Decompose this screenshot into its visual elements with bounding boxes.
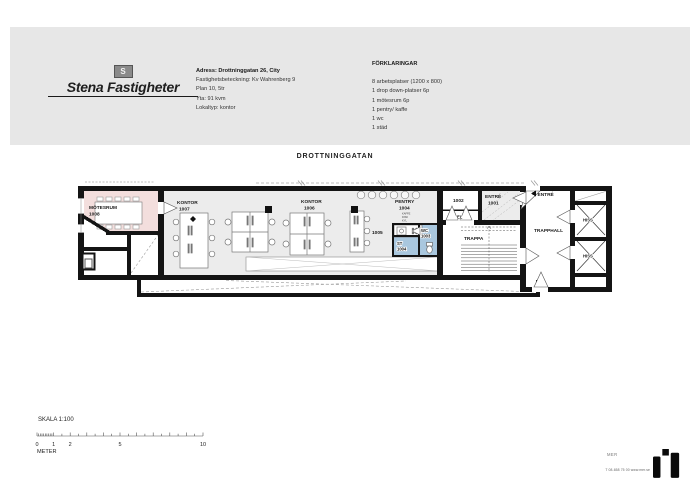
label-el: EL [457, 215, 463, 220]
label-motesrum-nr: 1008 [89, 212, 100, 218]
label-st: ST [397, 241, 403, 246]
label-st-nr: 1004 [397, 247, 407, 252]
legend: FÖRKLARINGAR 8 arbetsplatser (1200 x 800… [372, 60, 442, 134]
door-stairhall-south [534, 272, 548, 287]
legend-item: 1 pentry/ kaffe [372, 106, 442, 115]
door-elevator-1 [557, 210, 570, 224]
scale-label: SKALA 1:100 [38, 417, 74, 423]
label-kontor-1007: KONTOR [177, 200, 198, 206]
property-designation: Fastighetsbeteckning: Kv Wahrenberg 9 [196, 76, 295, 85]
street-label: DROTTNINGGATAN [235, 153, 435, 160]
storage-bench [246, 257, 439, 271]
label-1005: 1005 [372, 230, 383, 236]
legend-title: FÖRKLARINGAR [372, 60, 442, 69]
scale-tick-0: 0 [35, 442, 38, 448]
property-address: Adress: Drottninggatan 26, City [196, 67, 295, 76]
header-band: S Stena Fastigheter Adress: Drottninggat… [10, 27, 690, 145]
closet [83, 254, 95, 270]
stena-logo: S Stena Fastigheter [48, 61, 198, 97]
scale-tick-10: 10 [200, 442, 206, 448]
property-info: Adress: Drottninggatan 26, City Fastighe… [196, 67, 295, 113]
brand-name: Stena Fastigheter [48, 79, 198, 97]
pillar [265, 206, 272, 213]
pillar [351, 206, 358, 213]
architect-logo-icon [653, 447, 681, 479]
floorplan-document-page: S Stena Fastigheter Adress: Drottninggat… [0, 0, 700, 495]
label-wc-nr: 1003 [421, 234, 431, 239]
property-area: Yta: 91 kvm [196, 95, 295, 104]
label-trapphall: TRAPPHALL [534, 228, 563, 234]
label-hiss-2: HISS [583, 254, 593, 259]
label-disk: DISK [402, 215, 408, 219]
label-kontor-1006: KONTOR [301, 199, 322, 205]
legend-item: 1 städ [372, 124, 442, 133]
desk-cluster [225, 212, 275, 252]
architect-contact: T 08-658 75 00 www.mer.se [575, 468, 650, 472]
scale-tick-1: 1 [52, 442, 55, 448]
label-trappa: TRAPPA [464, 236, 484, 242]
label-kyl: KYL [402, 219, 407, 223]
label-kontor-1007-nr: 1007 [179, 207, 190, 213]
legend-item: 1 wc [372, 115, 442, 124]
legend-item: 1 drop down-platser 6p [372, 87, 442, 96]
stairs [461, 226, 517, 272]
property-floor: Plan 10, 5tr [196, 85, 295, 94]
scale-ruler: 0 1 2 5 10 [33, 429, 213, 453]
door-corridor [526, 248, 539, 264]
toilet-icon [427, 243, 433, 254]
legend-item: 1 mötesrum 6p [372, 97, 442, 106]
stena-flag-icon: S [114, 65, 133, 78]
label-1002: 1002 [453, 198, 464, 204]
conference-table [95, 197, 142, 229]
scale-unit: METER [37, 449, 57, 455]
label-pentry-nr: 1004 [399, 206, 410, 212]
door-elevator-2 [557, 246, 570, 260]
desk-cluster [283, 213, 331, 255]
label-hiss-1: HISS [583, 218, 593, 223]
scale-tick-5: 5 [118, 442, 121, 448]
floorplan-drawing: MÖTESRUM 1008 KONTOR 1007 KONTOR 1006 10… [76, 180, 620, 302]
legend-item: 8 arbetsplatser (1200 x 800) [372, 78, 442, 87]
label-motesrum: MÖTESRUM [89, 204, 117, 211]
facade-markings [85, 181, 538, 186]
label-pentry: PENTRY [395, 199, 415, 205]
property-type: Lokaltyp: kontor [196, 104, 295, 113]
scale-tick-2: 2 [69, 442, 72, 448]
label-kaffe: KAFFE [402, 212, 411, 216]
label-wc: WC [421, 228, 428, 233]
architect-brand-text: MER [607, 452, 618, 457]
label-entre-1001-nr: 1001 [488, 201, 499, 207]
label-kontor-1006-nr: 1006 [304, 206, 315, 212]
high-table-1005 [350, 211, 370, 252]
